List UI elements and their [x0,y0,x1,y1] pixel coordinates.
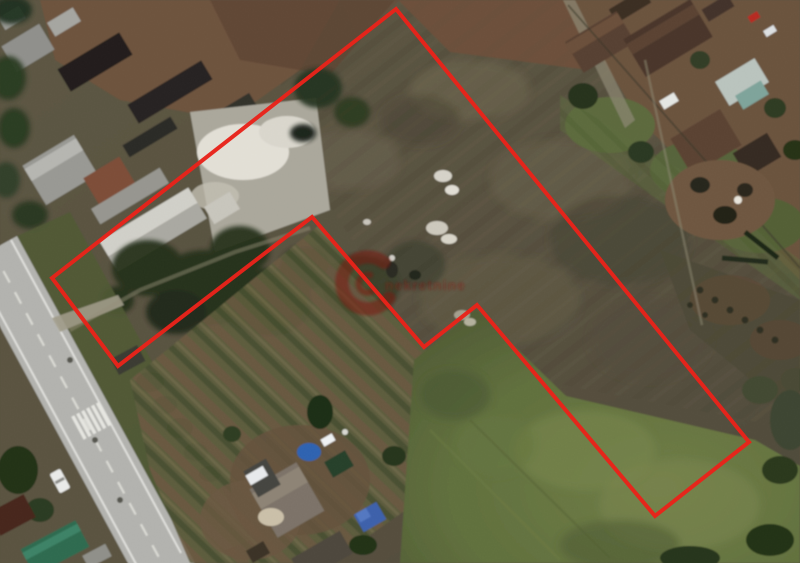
aerial-photo-frame: nekretnine [0,0,800,563]
watermark-text: nekretnine [385,277,466,293]
satellite-photo: nekretnine [0,0,800,563]
